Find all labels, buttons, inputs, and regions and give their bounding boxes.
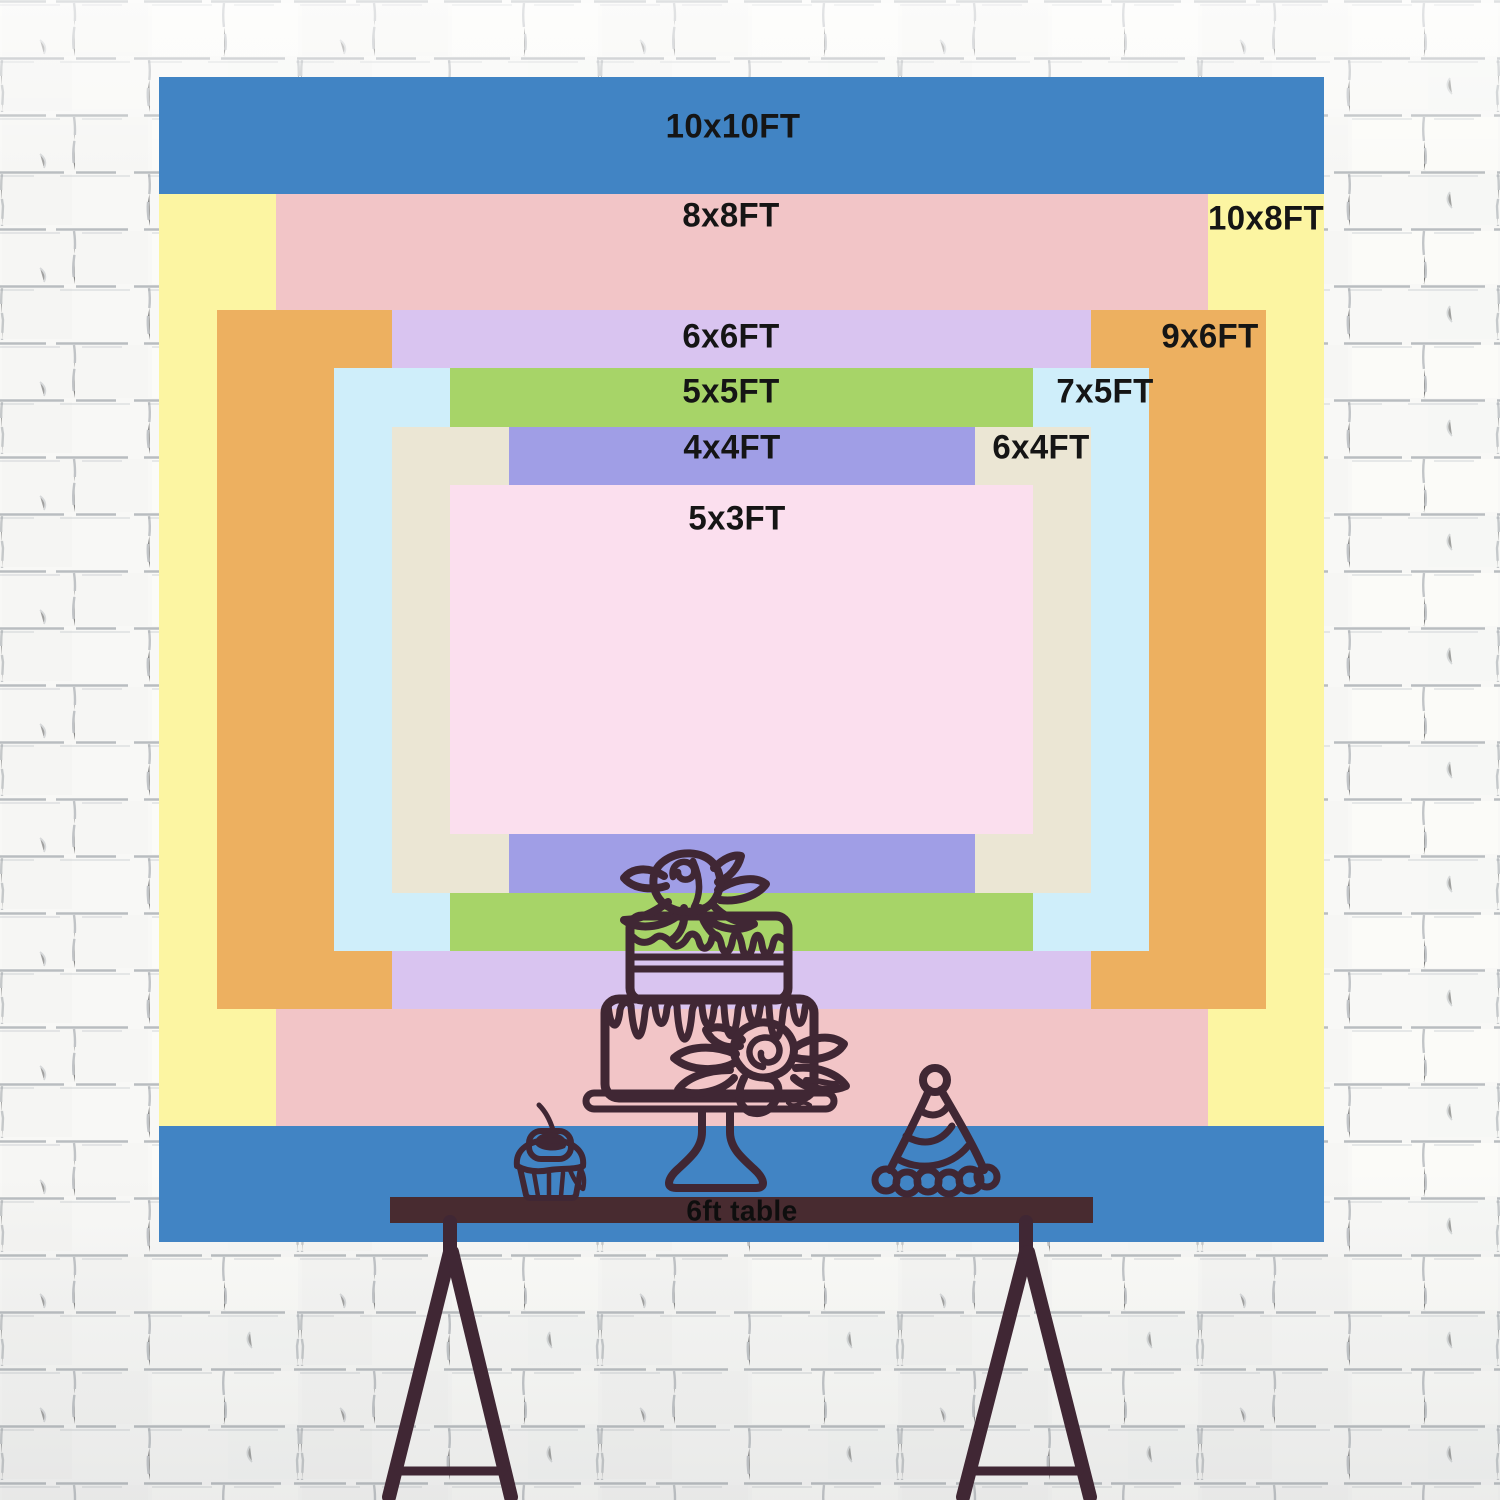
illustration-layer — [0, 0, 1500, 1500]
table-length-label: 6ft table — [686, 1196, 797, 1229]
tiered-cake-on-stand-icon — [586, 853, 846, 1188]
backdrop-size-chart-page: 10x10FT10x8FT8x8FT9x6FT6x6FT7x5FT5x5FT6x… — [0, 0, 1500, 1500]
trestle-table-icon — [389, 1197, 1093, 1497]
trestle-leg-left — [389, 1222, 511, 1497]
trestle-leg-right — [963, 1222, 1090, 1497]
party-hat-icon — [875, 1068, 997, 1194]
hat-scalloped-brim — [875, 1167, 997, 1194]
cupcake-with-cherry-icon — [517, 1105, 584, 1198]
